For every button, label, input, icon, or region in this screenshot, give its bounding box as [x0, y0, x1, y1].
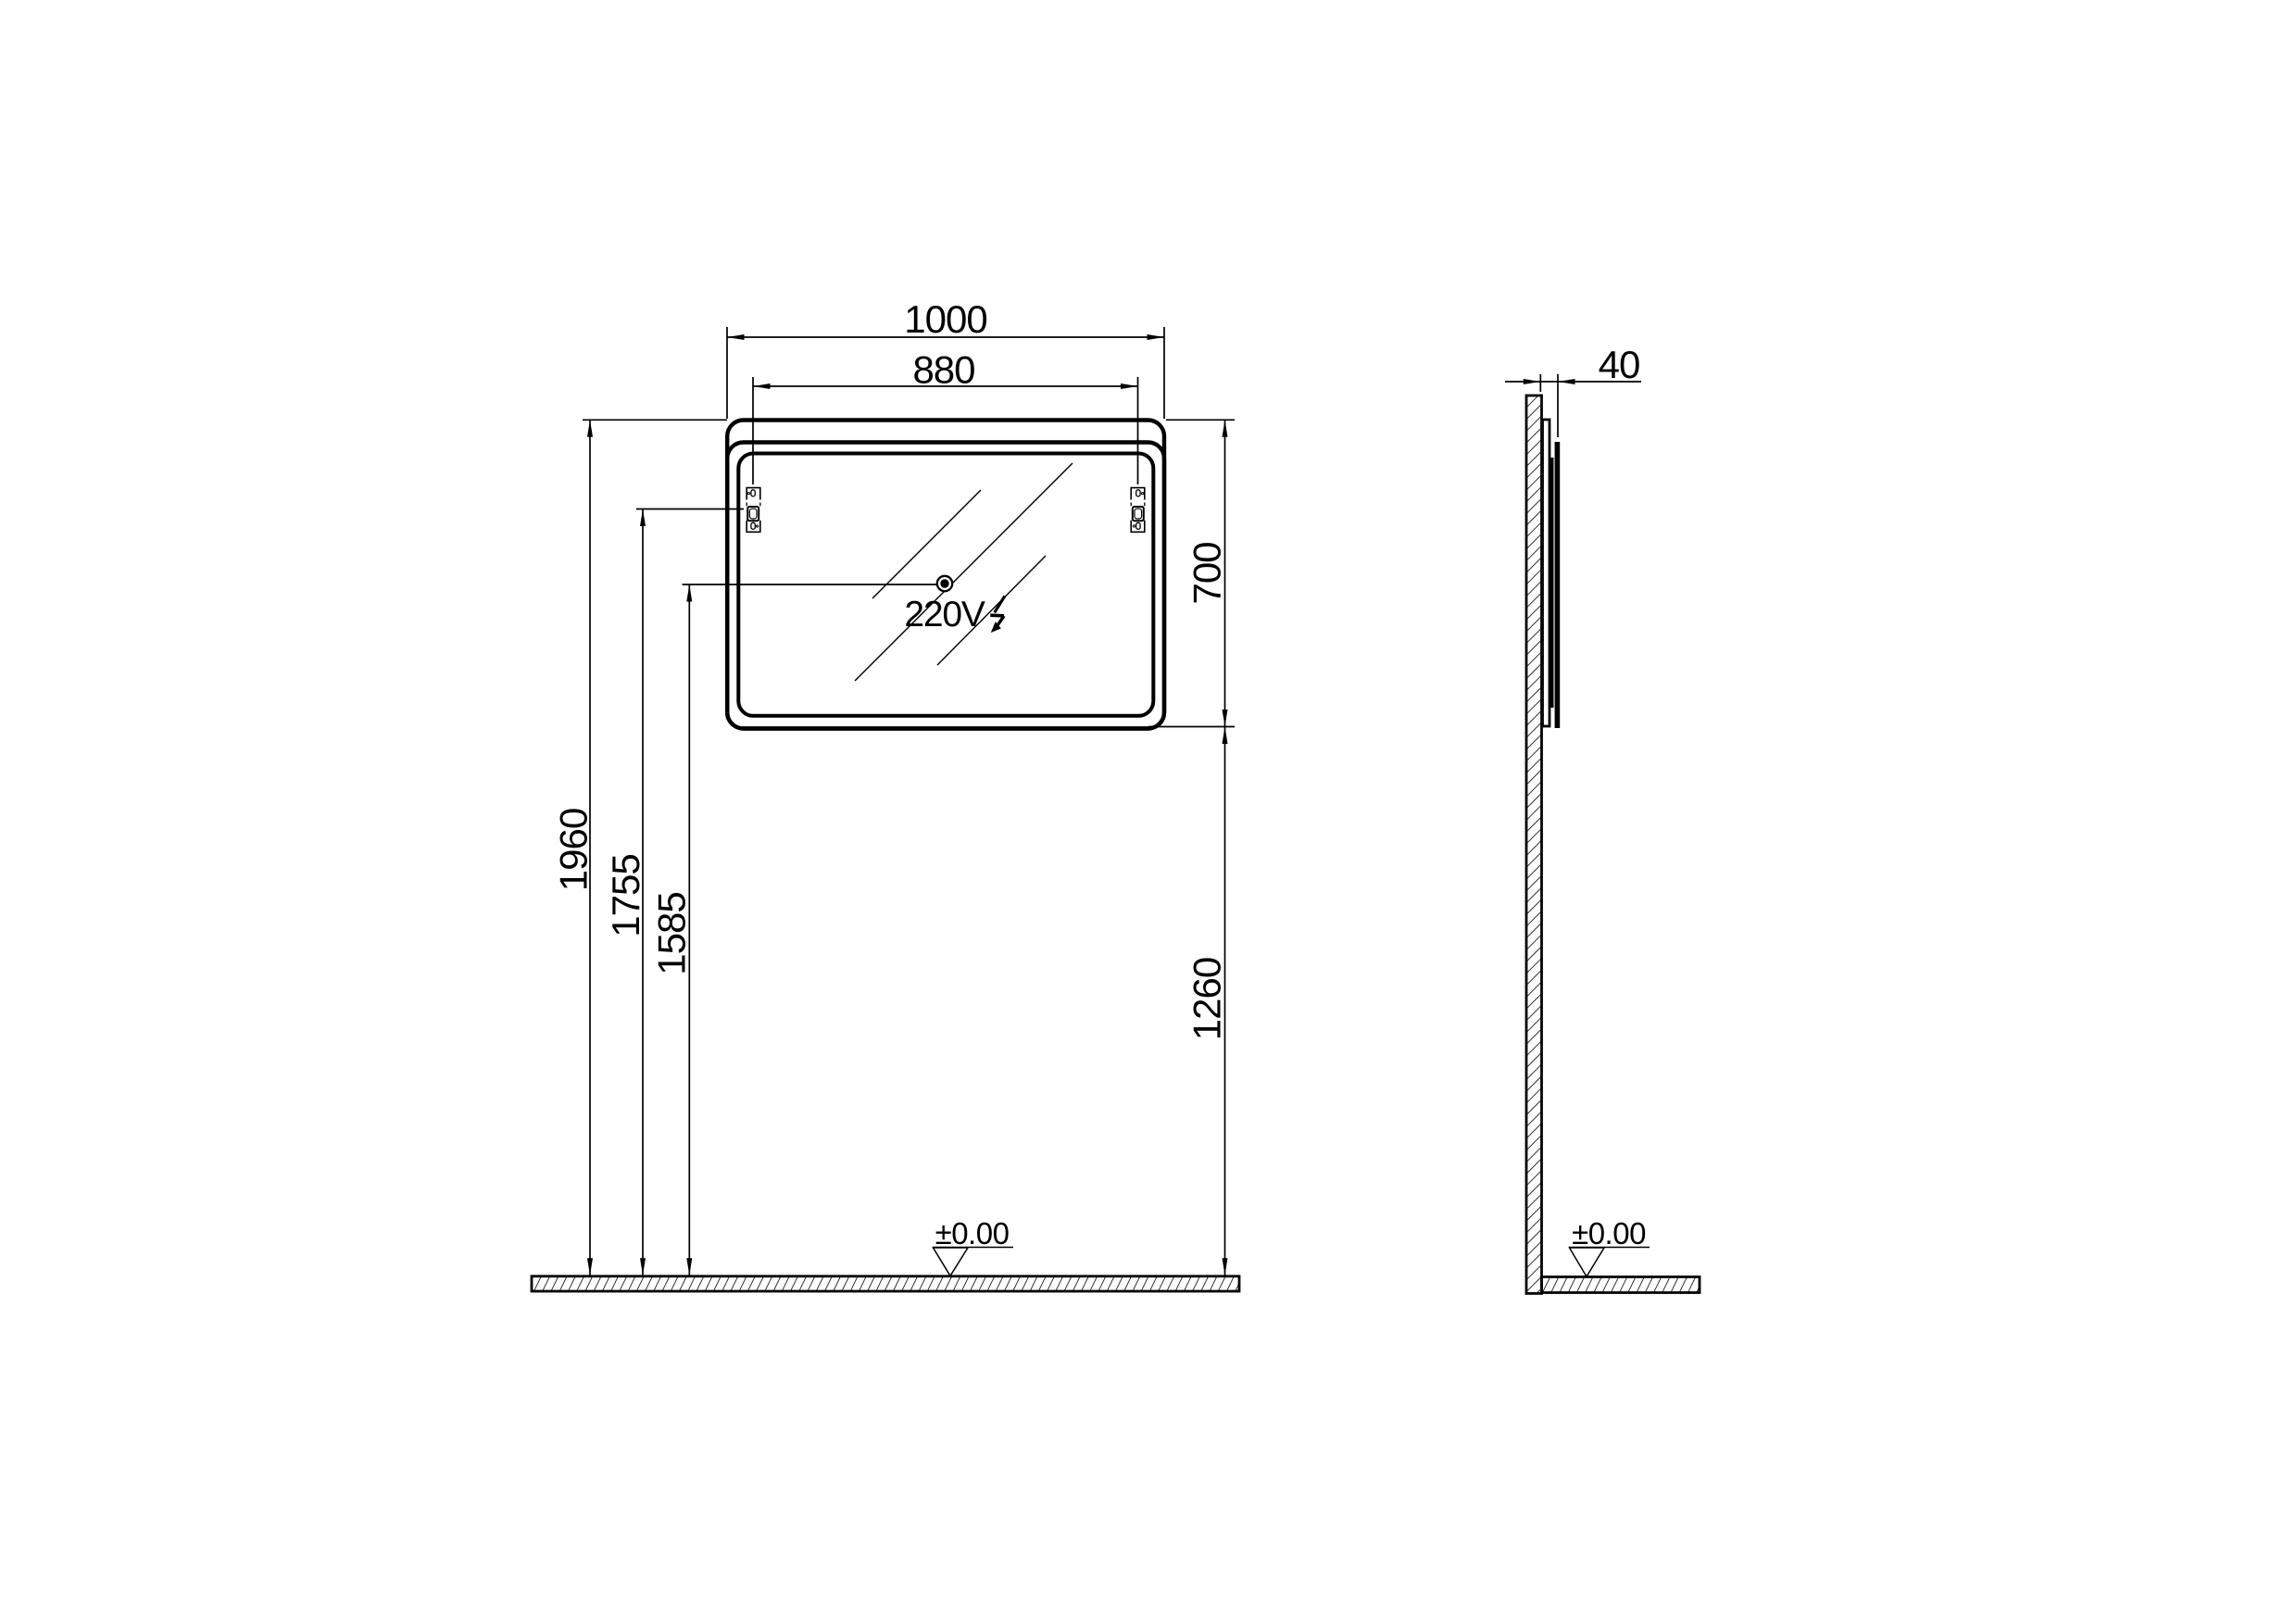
svg-text:1260: 1260: [1186, 958, 1229, 1040]
svg-text:±0.00: ±0.00: [1572, 1216, 1646, 1250]
svg-text:40: 40: [1599, 343, 1640, 386]
svg-text:1000: 1000: [904, 297, 986, 341]
svg-text:1960: 1960: [552, 809, 596, 891]
svg-text:700: 700: [1186, 542, 1229, 604]
svg-text:880: 880: [912, 347, 974, 391]
svg-text:1755: 1755: [604, 854, 647, 936]
svg-text:1585: 1585: [650, 892, 694, 974]
svg-text:220V: 220V: [904, 595, 985, 635]
svg-text:±0.00: ±0.00: [935, 1216, 1010, 1250]
